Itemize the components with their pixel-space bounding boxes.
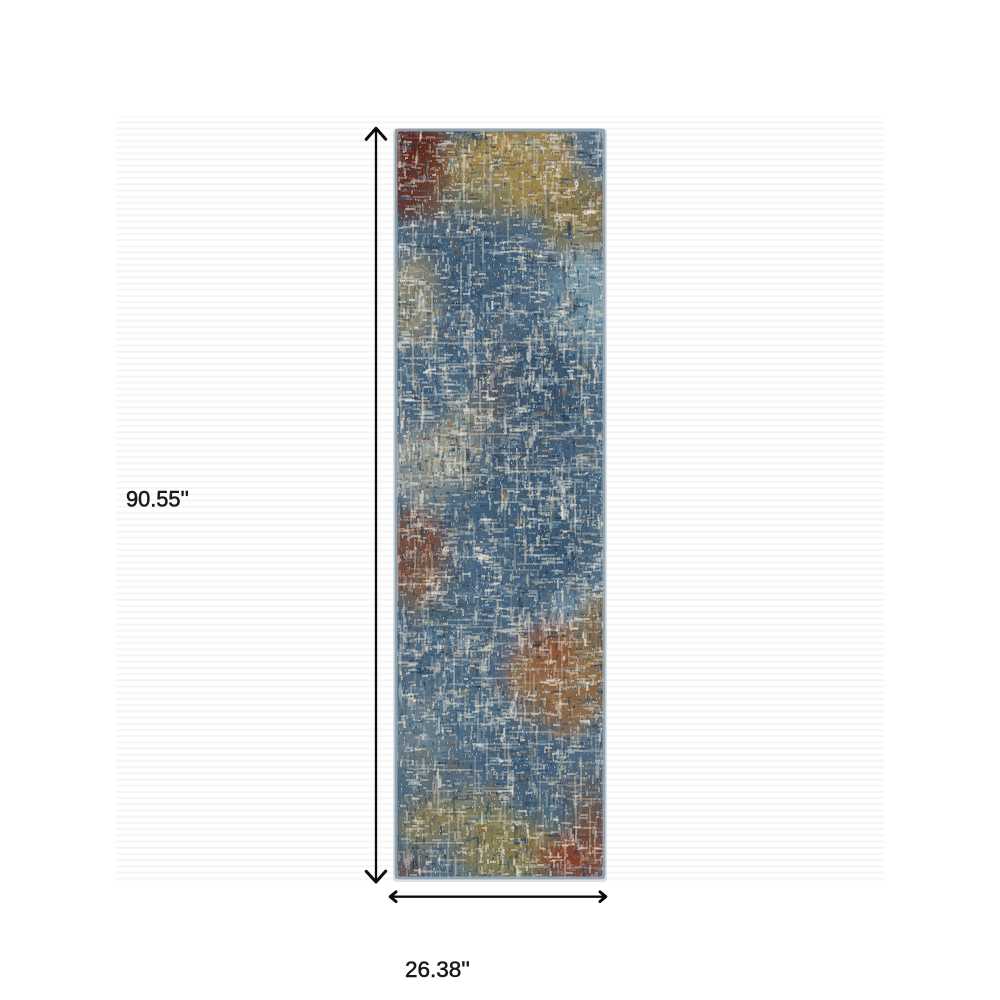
svg-text:90.55'': 90.55'' <box>126 487 189 512</box>
svg-text:26.38'': 26.38'' <box>405 957 470 982</box>
